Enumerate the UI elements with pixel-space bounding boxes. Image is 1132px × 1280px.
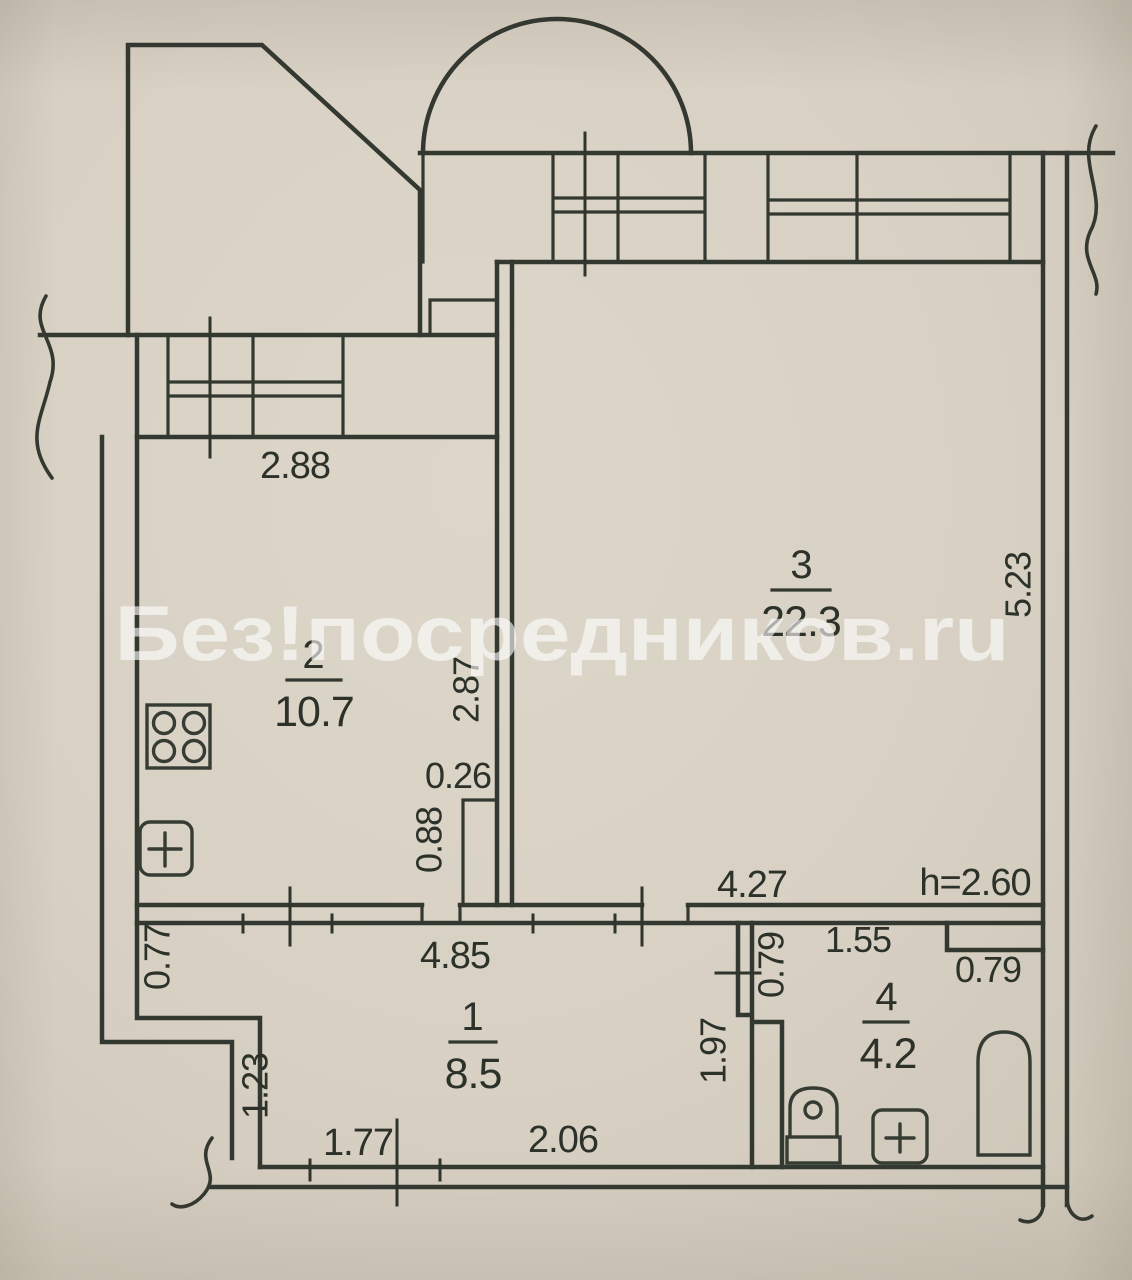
floor-plan-photo: 2.88 2.87 0.26 0.88 4.85 4.27 h=2.60 5.2… xyxy=(0,0,1132,1280)
floor-plan-svg: 2.88 2.87 0.26 0.88 4.85 4.27 h=2.60 5.2… xyxy=(0,0,1132,1280)
dim-hall-top: 4.85 xyxy=(420,935,490,977)
dim-left-step: 1.23 xyxy=(235,1053,276,1119)
room-1-area: 8.5 xyxy=(445,1050,502,1098)
dim-shaft-height: 0.88 xyxy=(409,807,450,873)
dim-left-nook: 0.77 xyxy=(137,924,178,990)
dim-bath-top: 1.55 xyxy=(825,919,891,960)
dim-hall-bottom-left: 1.77 xyxy=(323,1122,393,1164)
dim-bath-niche: 0.79 xyxy=(955,949,1021,990)
room-1-number: 1 xyxy=(461,995,482,1039)
room-4-area: 4.2 xyxy=(860,1030,917,1078)
dim-hall-right: 1.97 xyxy=(693,1018,734,1084)
dim-kitchen-width: 2.88 xyxy=(260,445,330,487)
dim-hall-bottom-right: 2.06 xyxy=(528,1119,598,1161)
dim-shaft-width: 0.26 xyxy=(425,755,491,796)
dim-room3-bottom: 4.27 xyxy=(717,864,787,906)
ceiling-height-note: h=2.60 xyxy=(919,862,1030,904)
dim-bath-partition: 0.79 xyxy=(751,932,792,998)
room-3-number: 3 xyxy=(790,543,811,587)
room-4-number: 4 xyxy=(875,975,897,1019)
room-2-area: 10.7 xyxy=(274,688,354,736)
watermark-text: Без!посредников.ru xyxy=(115,589,1010,677)
